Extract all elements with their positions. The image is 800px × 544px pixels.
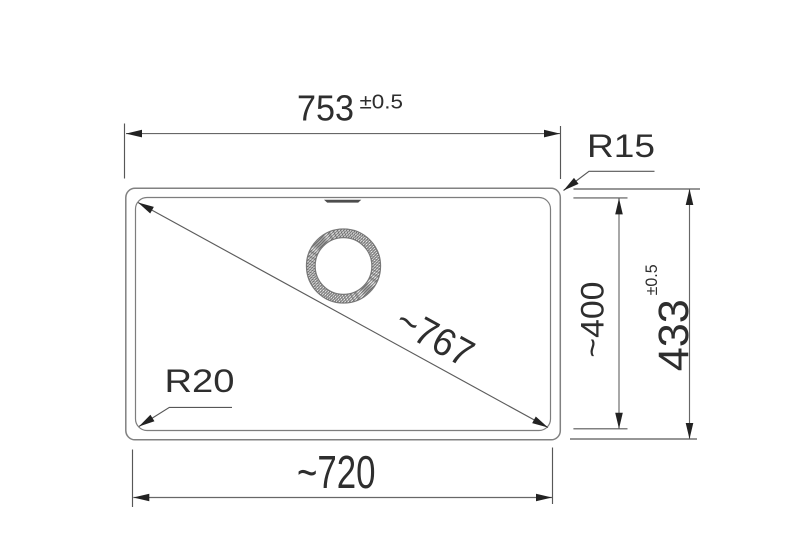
svg-text:±0.5: ±0.5 bbox=[642, 264, 661, 295]
svg-text:R20: R20 bbox=[165, 363, 235, 399]
svg-text:433: 433 bbox=[650, 299, 698, 371]
svg-text:753: 753 bbox=[297, 88, 354, 129]
svg-text:±0.5: ±0.5 bbox=[360, 92, 404, 114]
svg-text:~720: ~720 bbox=[297, 446, 376, 498]
svg-text:R15: R15 bbox=[587, 128, 655, 164]
svg-text:~400: ~400 bbox=[575, 282, 611, 358]
